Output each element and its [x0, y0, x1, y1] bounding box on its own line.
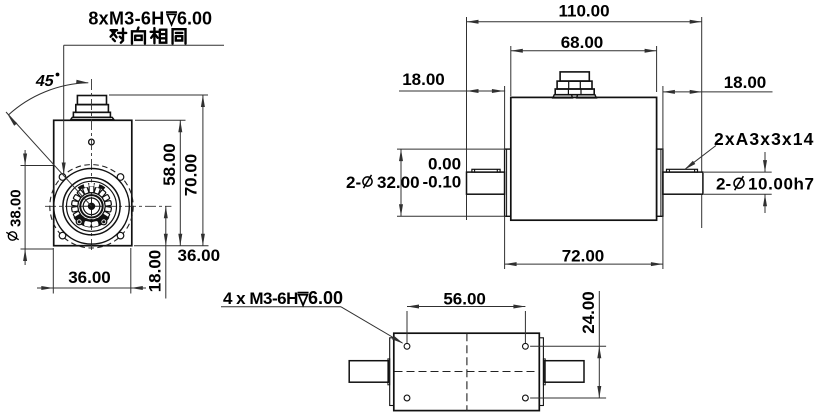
- svg-text:24.00: 24.00: [579, 291, 598, 334]
- svg-text:32.00: 32.00: [377, 173, 420, 192]
- svg-text:6.00: 6.00: [177, 8, 212, 28]
- svg-text:2-: 2-: [716, 175, 731, 194]
- svg-text:45: 45: [34, 72, 56, 90]
- svg-text:18.00: 18.00: [402, 70, 445, 89]
- svg-text:18.00: 18.00: [145, 250, 164, 293]
- svg-text:2xA3x3x14: 2xA3x3x14: [714, 129, 814, 149]
- svg-text:8xM3-6H: 8xM3-6H: [88, 8, 164, 28]
- svg-text:68.00: 68.00: [561, 33, 604, 52]
- svg-text:0.00: 0.00: [428, 155, 461, 174]
- svg-text:4 x M3-6H: 4 x M3-6H: [223, 289, 298, 308]
- svg-text:38.00: 38.00: [8, 189, 25, 227]
- svg-text:-0.10: -0.10: [423, 173, 462, 192]
- svg-text:36.00: 36.00: [178, 246, 221, 265]
- svg-text:2-: 2-: [346, 173, 361, 192]
- svg-text:56.00: 56.00: [443, 290, 486, 309]
- svg-text:58.00: 58.00: [160, 143, 179, 186]
- svg-text:6.00: 6.00: [308, 288, 343, 308]
- svg-text:110.00: 110.00: [558, 2, 609, 21]
- svg-text:18.00: 18.00: [724, 73, 767, 92]
- svg-text:70.00: 70.00: [182, 154, 201, 197]
- svg-text:36.00: 36.00: [68, 268, 111, 287]
- svg-text:72.00: 72.00: [562, 247, 605, 266]
- svg-text:10.00h7: 10.00h7: [748, 175, 815, 194]
